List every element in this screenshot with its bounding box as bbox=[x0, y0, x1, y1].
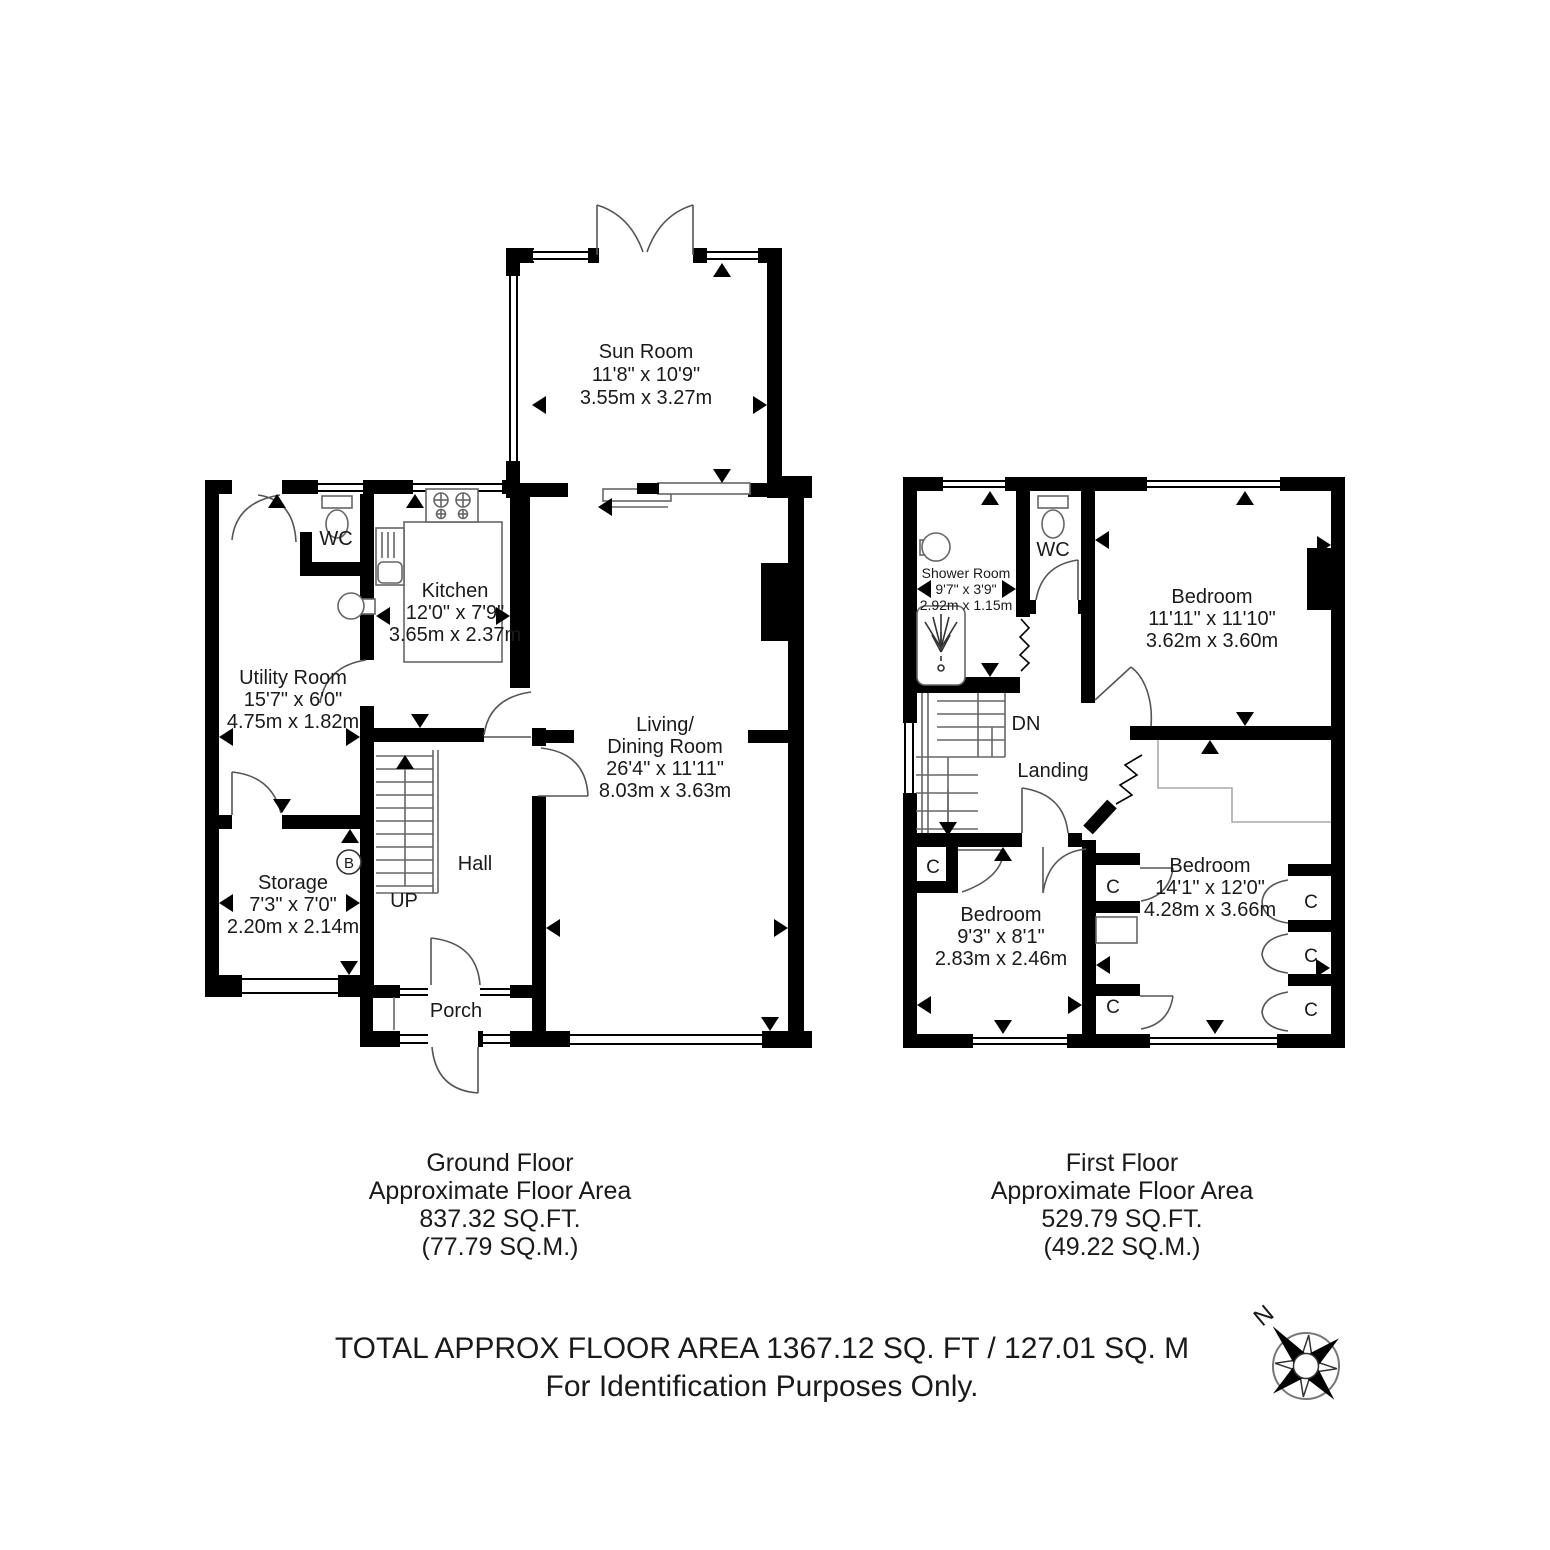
shower-room-dim-imperial: 9'7" x 3'9" bbox=[935, 581, 996, 597]
kitchen-label: Kitchen bbox=[422, 580, 489, 602]
utility-room-label: Utility Room bbox=[239, 667, 347, 689]
wc-first-label: WC bbox=[1036, 539, 1069, 561]
living-dining-dim-imperial: 26'4" x 11'11" bbox=[606, 758, 724, 780]
closet-label-6: C bbox=[1304, 1000, 1318, 1021]
bedroom-front-label: Bedroom bbox=[1169, 855, 1250, 877]
living-dining-label-2: Dining Room bbox=[607, 736, 723, 758]
sun-room-label: Sun Room bbox=[599, 341, 694, 363]
storage-dim-metric: 2.20m x 2.14m bbox=[227, 916, 359, 938]
first-caption-sqm: (49.22 SQ.M.) bbox=[1044, 1233, 1201, 1261]
bedroom-rear-dim-metric: 3.62m x 3.60m bbox=[1146, 630, 1278, 652]
bedroom-front-dim-imperial: 14'1" x 12'0" bbox=[1155, 877, 1265, 899]
ground-caption-sqft: 837.32 SQ.FT. bbox=[419, 1205, 580, 1233]
sun-room-dim-imperial: 11'8" x 10'9" bbox=[592, 364, 700, 386]
bedroom-small-dim-metric: 2.83m x 2.46m bbox=[935, 948, 1067, 970]
porch-label: Porch bbox=[430, 1000, 482, 1022]
ground-floor-caption: Ground Floor Approximate Floor Area 837.… bbox=[369, 1149, 632, 1261]
wc-ground-label: WC bbox=[319, 528, 352, 550]
footer-text: TOTAL APPROX FLOOR AREA 1367.12 SQ. FT /… bbox=[335, 1332, 1189, 1403]
bedroom-front-dim-metric: 4.28m x 3.66m bbox=[1144, 899, 1276, 921]
stairs-down-label: DN bbox=[1012, 713, 1041, 735]
bedroom-small-label: Bedroom bbox=[960, 904, 1041, 926]
first-floor-caption: First Floor Approximate Floor Area 529.7… bbox=[991, 1149, 1254, 1261]
ground-floor-plan: Sun Room 11'8" x 10'9" 3.55m x 3.27m Kit… bbox=[227, 341, 731, 1261]
closet-label-3: C bbox=[1106, 997, 1120, 1018]
stairs-up-label: UP bbox=[390, 890, 418, 912]
ground-caption-sqm: (77.79 SQ.M.) bbox=[422, 1233, 579, 1261]
north-label: N bbox=[1249, 1300, 1280, 1332]
shower-room-dim-metric: 2.92m x 1.15m bbox=[920, 597, 1013, 613]
storage-dim-imperial: 7'3" x 7'0" bbox=[249, 894, 336, 916]
utility-room-dim-imperial: 15'7" x 6'0" bbox=[244, 689, 343, 711]
landing-label: Landing bbox=[1017, 760, 1088, 782]
floor-plan-page: Sun Room 11'8" x 10'9" 3.55m x 3.27m Kit… bbox=[0, 0, 1550, 1550]
closet-label-4: C bbox=[1304, 892, 1318, 913]
ground-caption-title: Ground Floor bbox=[426, 1149, 573, 1177]
bedroom-rear-label: Bedroom bbox=[1171, 586, 1252, 608]
floor-plan-drawing: Sun Room 11'8" x 10'9" 3.55m x 3.27m Kit… bbox=[0, 0, 1550, 1550]
kitchen-dim-imperial: 12'0" x 7'9" bbox=[406, 602, 505, 624]
closet-label-1: C bbox=[926, 857, 940, 878]
ground-caption-subtitle: Approximate Floor Area bbox=[369, 1177, 632, 1205]
closet-label-5: C bbox=[1304, 946, 1318, 967]
total-area-text: TOTAL APPROX FLOOR AREA 1367.12 SQ. FT /… bbox=[335, 1332, 1189, 1365]
first-floor-plan: Shower Room 9'7" x 3'9" 2.92m x 1.15m WC… bbox=[920, 539, 1318, 1261]
boiler-label: B bbox=[344, 855, 354, 872]
living-dining-label-1: Living/ bbox=[636, 714, 694, 736]
closet-label-2: C bbox=[1106, 877, 1120, 898]
compass-rose: N bbox=[1222, 1277, 1368, 1428]
first-caption-title: First Floor bbox=[1066, 1149, 1179, 1177]
hall-label: Hall bbox=[458, 853, 492, 875]
identification-text: For Identification Purposes Only. bbox=[546, 1370, 979, 1403]
sun-room-dim-metric: 3.55m x 3.27m bbox=[580, 387, 712, 409]
shower-room-label: Shower Room bbox=[922, 565, 1011, 581]
living-dining-dim-metric: 8.03m x 3.63m bbox=[599, 780, 731, 802]
first-caption-sqft: 529.79 SQ.FT. bbox=[1041, 1205, 1202, 1233]
utility-room-dim-metric: 4.75m x 1.82m bbox=[227, 711, 359, 733]
kitchen-dim-metric: 3.65m x 2.37m bbox=[389, 624, 521, 646]
first-caption-subtitle: Approximate Floor Area bbox=[991, 1177, 1254, 1205]
bedroom-small-dim-imperial: 9'3" x 8'1" bbox=[957, 926, 1044, 948]
bedroom-rear-dim-imperial: 11'11" x 11'10" bbox=[1148, 608, 1275, 630]
storage-label: Storage bbox=[258, 872, 328, 894]
